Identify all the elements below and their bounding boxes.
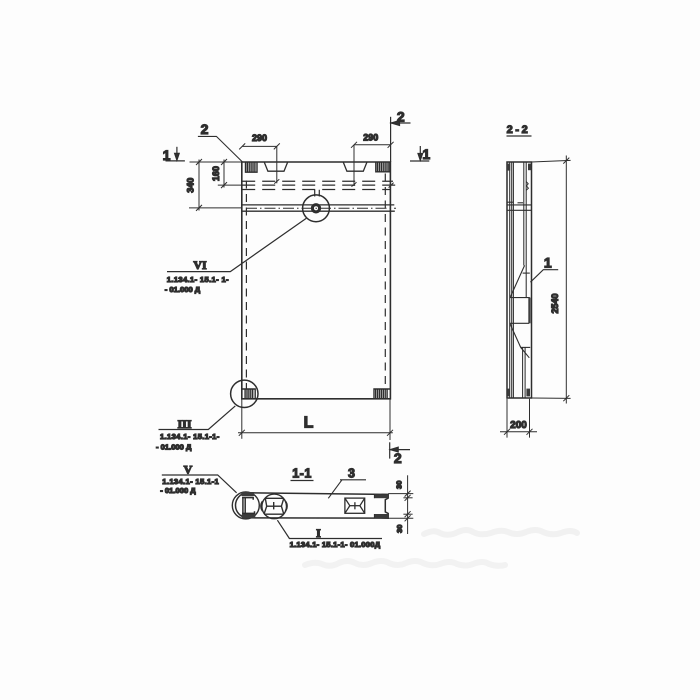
svg-text:III: III: [177, 417, 191, 431]
svg-text:1: 1: [163, 147, 171, 163]
svg-text:1.134.1- 15.1- 1-: 1.134.1- 15.1- 1-: [167, 275, 229, 284]
svg-text:1.134.1- 15.1-1: 1.134.1- 15.1-1: [162, 477, 219, 486]
svg-text:- 01.000 Д: - 01.000 Д: [156, 442, 192, 451]
svg-text:2: 2: [201, 121, 209, 137]
svg-text:L: L: [304, 415, 314, 432]
svg-text:2: 2: [397, 108, 405, 124]
svg-text:1: 1: [422, 146, 430, 162]
svg-text:2-2: 2-2: [507, 124, 531, 136]
svg-text:30: 30: [395, 481, 404, 489]
svg-text:1.134.1- 15.1-1-: 1.134.1- 15.1-1-: [160, 432, 220, 441]
svg-text:- 01.000 Д: - 01.000 Д: [160, 486, 196, 495]
svg-text:I: I: [316, 526, 321, 540]
svg-text:3: 3: [348, 466, 355, 480]
svg-text:290: 290: [363, 133, 378, 143]
svg-text:- 01.000 Д: - 01.000 Д: [165, 285, 201, 294]
svg-text:2540: 2540: [550, 293, 560, 313]
svg-text:VI: VI: [193, 258, 207, 272]
svg-text:340: 340: [186, 178, 196, 193]
svg-text:200: 200: [510, 420, 527, 431]
svg-text:290: 290: [252, 133, 267, 143]
svg-text:V: V: [184, 463, 193, 477]
svg-text:160: 160: [211, 166, 221, 181]
svg-text:30: 30: [395, 525, 404, 533]
svg-text:1.134.1- 15.1-1- 01.000Д: 1.134.1- 15.1-1- 01.000Д: [290, 540, 381, 549]
svg-text:1: 1: [544, 254, 552, 270]
svg-text:2: 2: [394, 450, 402, 466]
svg-text:1-1: 1-1: [292, 466, 312, 480]
